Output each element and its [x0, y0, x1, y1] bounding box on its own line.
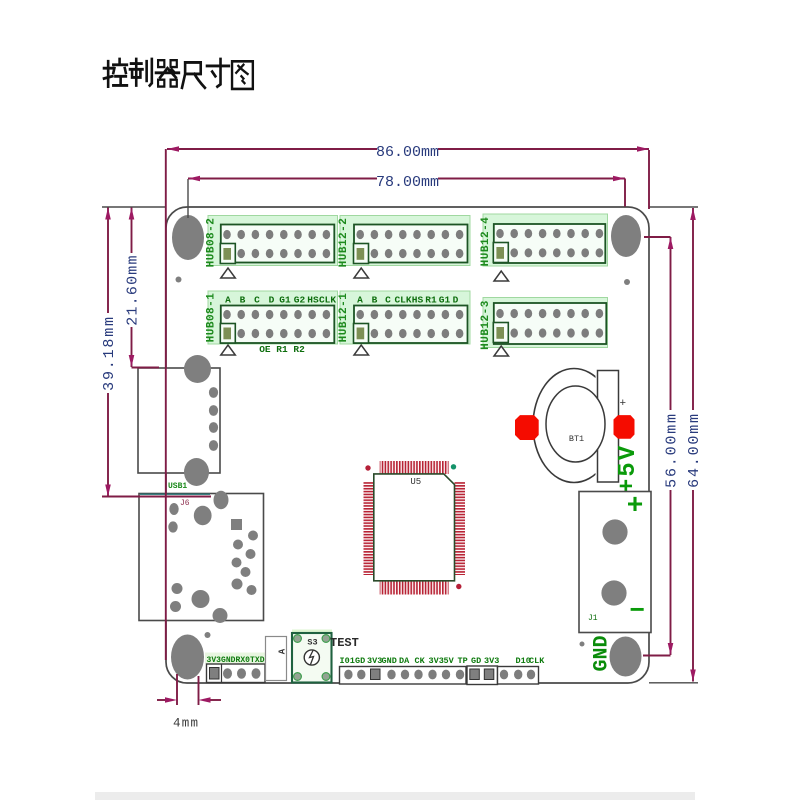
svg-text:HUB08-1: HUB08-1 [206, 293, 218, 343]
svg-text:A: A [225, 295, 231, 306]
svg-text:HUB12-1: HUB12-1 [338, 293, 350, 343]
svg-text:G1: G1 [279, 295, 291, 306]
svg-text:3V3: 3V3 [429, 656, 444, 666]
svg-text:3V3: 3V3 [367, 656, 382, 666]
svg-text:+: + [627, 491, 644, 522]
svg-text:C: C [254, 295, 260, 306]
svg-text:TEST: TEST [330, 636, 359, 650]
svg-text:S3: S3 [307, 638, 317, 648]
svg-text:DA: DA [399, 656, 410, 666]
svg-text:HUB12-3: HUB12-3 [480, 300, 492, 350]
svg-text:+: + [620, 398, 627, 410]
svg-text:A: A [357, 295, 363, 306]
svg-text:R1: R1 [425, 295, 437, 306]
svg-text:D: D [269, 295, 275, 306]
svg-text:B: B [240, 295, 246, 306]
svg-text:HS: HS [307, 295, 319, 306]
svg-text:OE R1 R2: OE R1 R2 [259, 344, 305, 355]
svg-text:CLK: CLK [319, 295, 336, 306]
svg-text:56.00mm: 56.00mm [664, 412, 681, 488]
svg-text:64.00mm: 64.00mm [686, 412, 703, 488]
svg-text:USB1: USB1 [168, 482, 187, 491]
svg-text:GD: GD [355, 656, 365, 666]
svg-text:39.18mm: 39.18mm [101, 315, 118, 391]
svg-text:CK: CK [415, 656, 426, 666]
svg-text:5V: 5V [444, 656, 455, 666]
svg-text:−: − [629, 596, 645, 626]
svg-text:CLK: CLK [394, 295, 411, 306]
svg-text:21.60mm: 21.60mm [125, 254, 142, 325]
svg-text:J6: J6 [180, 499, 190, 508]
svg-text:U5: U5 [410, 477, 421, 487]
svg-text:B: B [372, 295, 378, 306]
svg-text:4mm: 4mm [173, 717, 198, 731]
svg-text:HUB12-2: HUB12-2 [338, 218, 350, 268]
svg-text:CLK: CLK [529, 656, 545, 666]
svg-text:86.00mm: 86.00mm [376, 144, 439, 161]
svg-text:GD: GD [471, 656, 481, 666]
svg-text:HUB12-4: HUB12-4 [480, 217, 492, 267]
svg-text:HUB08-2: HUB08-2 [206, 218, 218, 268]
svg-text:+5V: +5V [615, 444, 642, 493]
svg-text:A: A [278, 648, 288, 654]
svg-text:GND: GND [382, 656, 397, 666]
svg-text:G2: G2 [294, 295, 306, 306]
svg-text:3V3: 3V3 [484, 656, 499, 666]
svg-text:G1: G1 [439, 295, 451, 306]
svg-text:I01: I01 [340, 656, 355, 666]
svg-text:78.00mm: 78.00mm [376, 174, 439, 191]
svg-text:BT1: BT1 [569, 434, 584, 444]
svg-text:GND: GND [591, 635, 614, 671]
svg-text:C: C [385, 295, 391, 306]
svg-text:D: D [453, 295, 459, 306]
svg-text:J1: J1 [588, 614, 598, 623]
svg-text:TP: TP [458, 656, 468, 666]
svg-text:HS: HS [412, 295, 424, 306]
